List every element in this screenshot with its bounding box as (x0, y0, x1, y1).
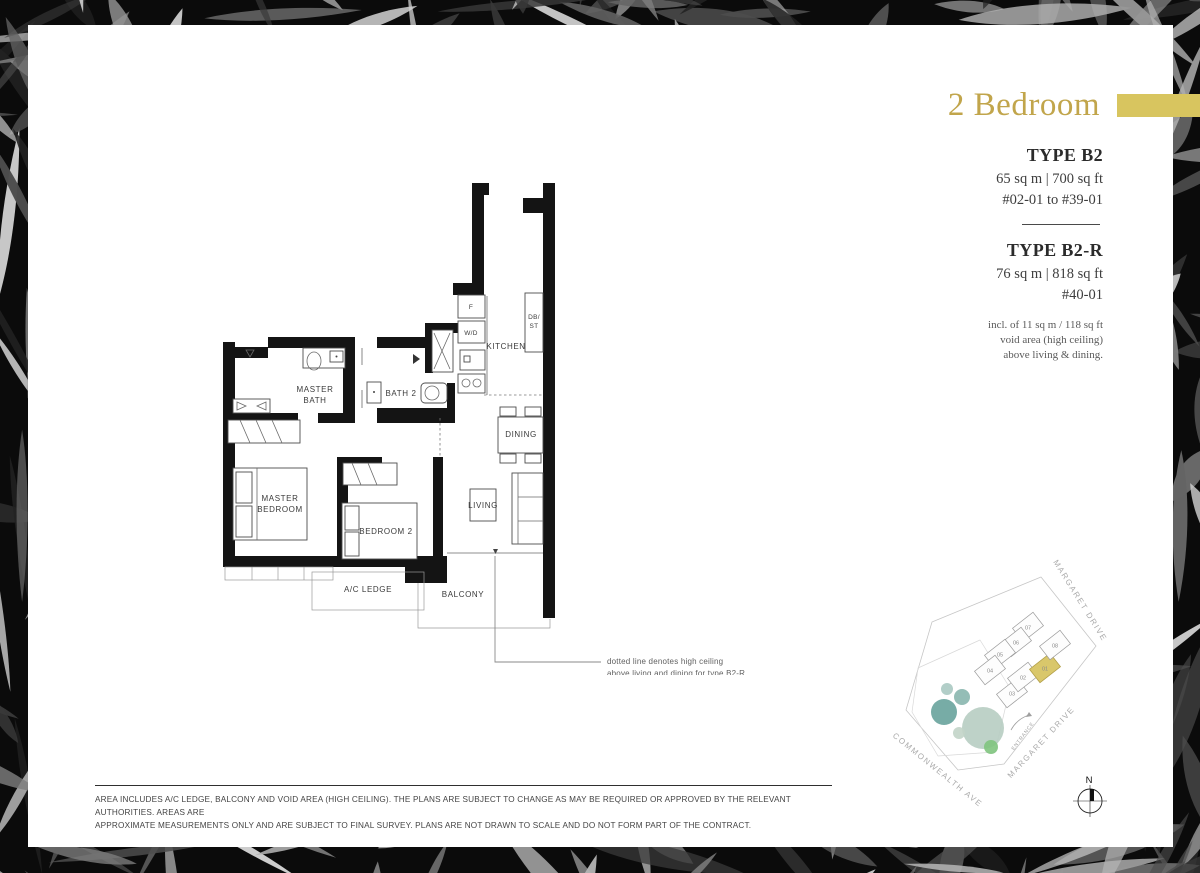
label-master-bedroom-2: BEDROOM (257, 505, 303, 514)
unit-05: 05 (997, 653, 1003, 659)
unit-08: 08 (1052, 644, 1058, 650)
unit-04: 04 (987, 669, 993, 675)
label-db: DB/ (528, 314, 540, 321)
type-b2-name: TYPE B2 (863, 145, 1103, 166)
label-ac-ledge: A/C LEDGE (344, 585, 392, 594)
floorplan: F W/D KITCHEN DB/ ST MASTER BATH BATH 2 … (195, 165, 755, 680)
label-dining: DINING (505, 430, 537, 439)
brochure-page: 2 Bedroom TYPE B2 65 sq m | 700 sq ft #0… (0, 0, 1200, 873)
north-compass-icon: N (1073, 775, 1107, 817)
unit-01: 01 (1042, 667, 1048, 673)
type-b2-units: #02-01 to #39-01 (863, 192, 1103, 209)
type-b2r-units: #40-01 (863, 287, 1103, 304)
unit-07: 07 (1025, 626, 1031, 632)
disclaimer-text: AREA INCLUDES A/C LEDGE, BALCONY AND VOI… (95, 793, 843, 832)
site-boundary (906, 577, 1096, 770)
type-b2r-name: TYPE B2-R (863, 240, 1103, 261)
unit-06: 06 (1013, 641, 1019, 647)
page: 2 Bedroom TYPE B2 65 sq m | 700 sq ft #0… (28, 25, 1173, 847)
label-living: LIVING (468, 501, 498, 510)
label-master-bath-1: MASTER (297, 385, 334, 394)
type-b2r-area: 76 sq m | 818 sq ft (863, 266, 1103, 283)
unit-03: 03 (1009, 692, 1015, 698)
label-kitchen: KITCHEN (486, 342, 525, 351)
label-master-bedroom-1: MASTER (262, 494, 299, 503)
type-b2-area: 65 sq m | 700 sq ft (863, 171, 1103, 188)
label-fridge: F (469, 304, 473, 311)
unit-type-panel: TYPE B2 65 sq m | 700 sq ft #02-01 to #3… (863, 145, 1103, 363)
floorplan-furniture (228, 293, 543, 559)
site-map: 07 06 05 04 03 02 01 08 MARGARET DRIVE M… (880, 555, 1125, 835)
type-divider (1022, 224, 1100, 225)
label-bedroom2: BEDROOM 2 (359, 527, 412, 536)
compass-n-label: N (1086, 775, 1093, 786)
label-st: ST (530, 323, 539, 330)
label-bath2: BATH 2 (385, 389, 416, 398)
high-ceiling-note-1: dotted line denotes high ceiling (607, 657, 723, 666)
high-ceiling-note-2: above living and dining for type B2-R (607, 669, 745, 675)
label-washer-dryer: W/D (464, 330, 478, 337)
label-master-bath-2: BATH (303, 396, 326, 405)
disclaimer-rule (95, 785, 832, 786)
gold-accent-bar (1117, 94, 1200, 117)
label-balcony: BALCONY (442, 590, 484, 599)
void-area-note: incl. of 11 sq m / 118 sq ft void area (… (863, 318, 1103, 363)
unit-02: 02 (1020, 676, 1026, 682)
page-title: 2 Bedroom (948, 87, 1100, 124)
